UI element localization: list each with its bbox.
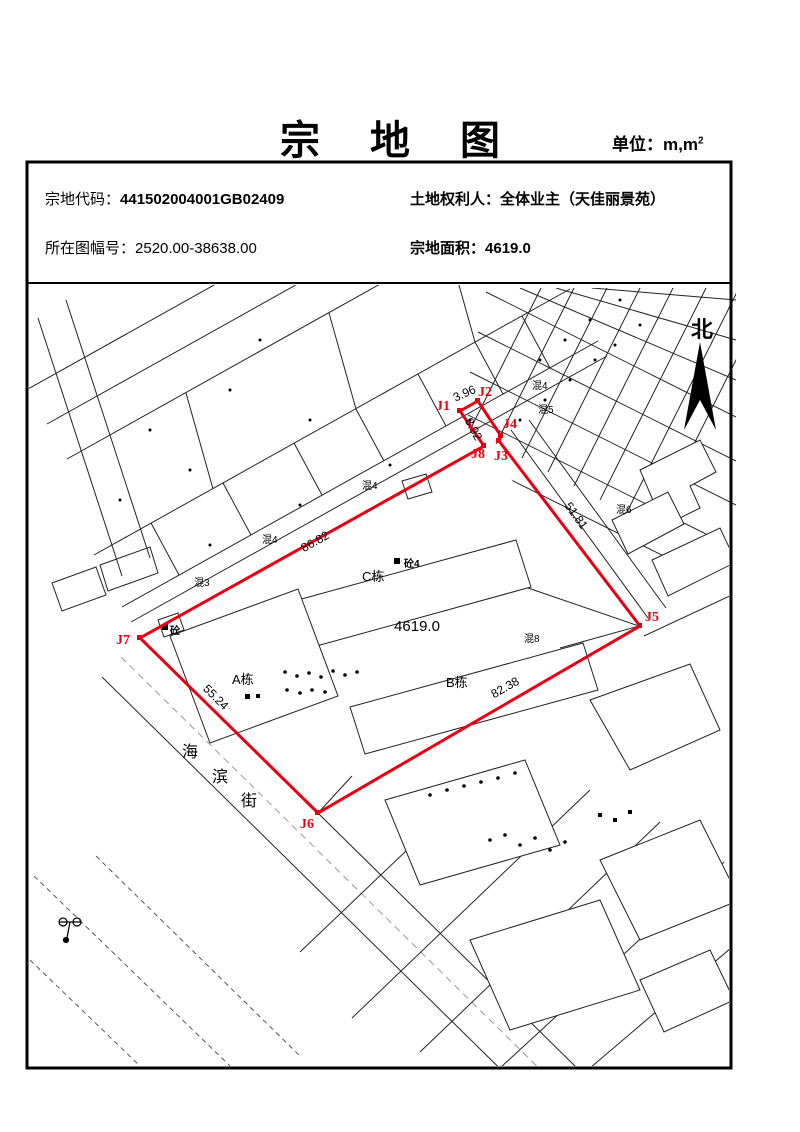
annotation-hun4-b: 混4 — [362, 480, 378, 492]
annotation-hun4-c: 混4 — [532, 380, 548, 392]
annotation-hun4-a: 混4 — [262, 534, 278, 546]
boundary-point-label-j3: J3 — [494, 449, 508, 464]
boundary-point-label-j8: J8 — [471, 447, 485, 462]
annotation-tong4: 砼4 — [404, 557, 420, 570]
boundary-point-label-j1: J1 — [436, 399, 450, 414]
street-name-char-2: 滨 — [212, 768, 228, 786]
boundary-point-label-j6: J6 — [300, 817, 314, 832]
annotation-tong: 砼 — [170, 624, 180, 637]
edge-length-j1-j2: 3.96 — [451, 382, 478, 404]
boundary-point-label-j7: J7 — [116, 633, 130, 648]
building-label-c: C栋 — [362, 569, 384, 584]
parcel-map-page: 宗 地 图 单位：m,m2 宗地代码：441502004001GB02409 土… — [0, 0, 800, 1132]
cadastral-map: J1 J2 J3 J4 J5 J6 J7 J8 3.96 8.92 51.81 … — [0, 0, 800, 1132]
boundary-point-label-j5: J5 — [645, 610, 659, 625]
building-label-a: A栋 — [232, 672, 254, 687]
street-name-char-3: 街 — [241, 792, 257, 810]
boundary-point-label-j4: J4 — [503, 417, 517, 432]
boundary-point-label-j2: J2 — [478, 385, 492, 400]
north-label: 北 — [691, 317, 713, 342]
annotation-hun3: 混3 — [194, 577, 210, 589]
edge-length-j7-j8: 86.82 — [299, 528, 332, 555]
annotation-hun5: 混5 — [538, 404, 554, 416]
street-lamp-icon — [59, 918, 81, 943]
parcel-area-number: 4619.0 — [394, 618, 440, 635]
annotation-hun6: 混6 — [616, 504, 632, 516]
annotation-hun8: 混8 — [524, 633, 540, 645]
north-arrow-icon — [684, 342, 716, 430]
north-arrow: 北 — [684, 317, 716, 430]
street-name-char-1: 海 — [182, 743, 198, 761]
edge-length-j8-j1: 8.92 — [462, 416, 485, 443]
building-label-b: B栋 — [446, 675, 468, 690]
